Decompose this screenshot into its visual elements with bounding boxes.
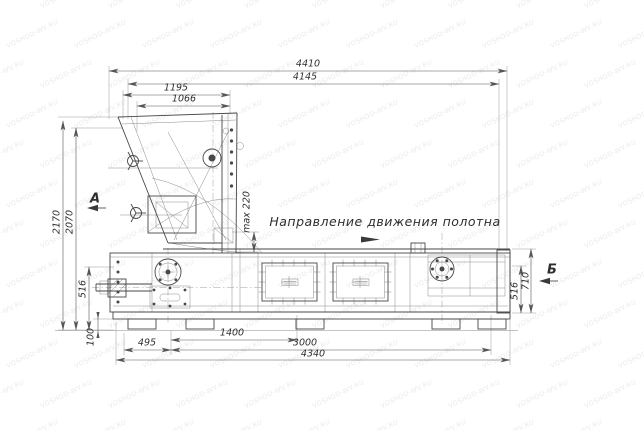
dim-1400: 1400 bbox=[220, 328, 244, 338]
dim-max-220: max 220 bbox=[242, 191, 252, 233]
dim-4410: 4410 bbox=[296, 59, 320, 69]
web-direction-label: Направление движения полотна bbox=[269, 216, 500, 229]
dim-516-right: 516 bbox=[510, 282, 520, 300]
dim-495: 495 bbox=[138, 338, 156, 348]
dim-1195: 1195 bbox=[164, 83, 188, 93]
dim-2170: 2170 bbox=[52, 210, 62, 234]
dim-516-left: 516 bbox=[78, 280, 88, 298]
view-marker-b: Б bbox=[547, 264, 557, 277]
dim-4340: 4340 bbox=[301, 349, 325, 359]
dim-1066: 1066 bbox=[172, 94, 196, 104]
dim-3000: 3000 bbox=[293, 338, 317, 348]
view-marker-a: А bbox=[90, 193, 100, 206]
drawing-canvas: VOSHOD-WV.RUVOSHOD-WV.RUVOSHOD-WV.RUVOSH… bbox=[0, 0, 644, 430]
view-b-arrow-icon bbox=[539, 278, 558, 284]
dim-4145: 4145 bbox=[293, 72, 317, 82]
dim-2070: 2070 bbox=[65, 210, 75, 234]
dim-100: 100 bbox=[86, 328, 96, 346]
direction-arrow-icon bbox=[361, 237, 380, 243]
dim-710: 710 bbox=[521, 272, 531, 290]
